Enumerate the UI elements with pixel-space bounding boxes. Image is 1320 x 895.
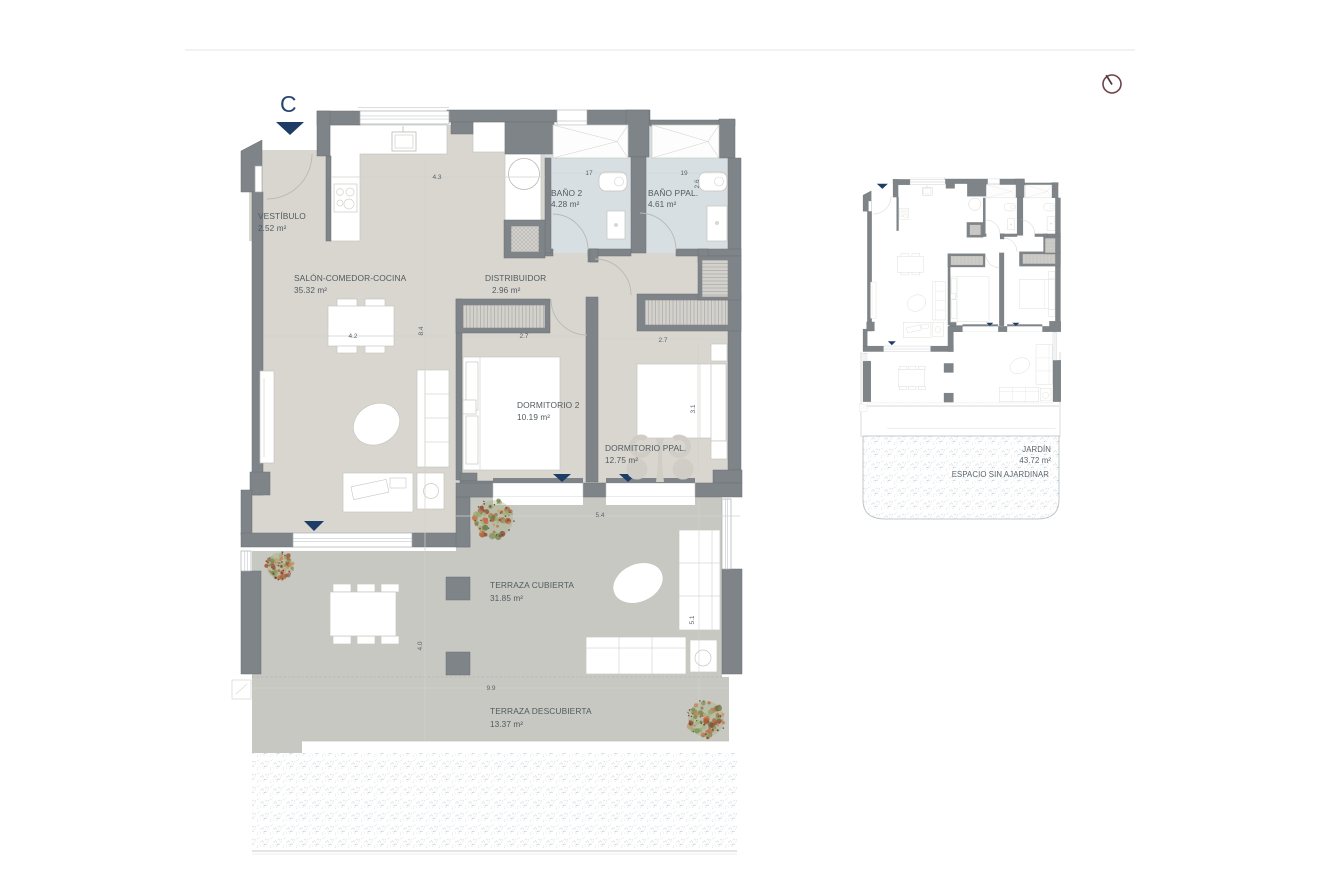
svg-text:DORMITORIO 2: DORMITORIO 2 bbox=[517, 400, 580, 410]
svg-text:SALÓN-COMEDOR-COCINA: SALÓN-COMEDOR-COCINA bbox=[294, 273, 407, 283]
svg-text:ESPACIO SIN AJARDINAR: ESPACIO SIN AJARDINAR bbox=[952, 470, 1050, 479]
svg-text:VESTÍBULO: VESTÍBULO bbox=[258, 211, 306, 221]
svg-text:35.32 m²: 35.32 m² bbox=[294, 286, 327, 295]
svg-text:4.0: 4.0 bbox=[417, 641, 424, 650]
svg-text:4.3: 4.3 bbox=[432, 174, 441, 181]
svg-text:5.4: 5.4 bbox=[595, 512, 604, 519]
svg-text:BAÑO 2: BAÑO 2 bbox=[551, 188, 583, 198]
svg-text:5.1: 5.1 bbox=[689, 615, 696, 624]
svg-text:2.96 m²: 2.96 m² bbox=[492, 286, 521, 295]
svg-text:13.37 m²: 13.37 m² bbox=[490, 720, 523, 729]
svg-text:19: 19 bbox=[680, 170, 688, 177]
svg-text:4.2: 4.2 bbox=[348, 333, 357, 340]
svg-text:43.72 m²: 43.72 m² bbox=[1019, 456, 1051, 465]
svg-text:4.28 m²: 4.28 m² bbox=[551, 200, 580, 209]
svg-text:8.4: 8.4 bbox=[418, 326, 425, 335]
svg-text:TERRAZA DESCUBIERTA: TERRAZA DESCUBIERTA bbox=[490, 706, 592, 716]
svg-text:2.7: 2.7 bbox=[658, 337, 667, 344]
svg-text:DORMITORIO PPAL.: DORMITORIO PPAL. bbox=[605, 443, 686, 453]
svg-text:10.19 m²: 10.19 m² bbox=[517, 413, 550, 422]
svg-text:17: 17 bbox=[585, 170, 593, 177]
svg-text:12.75 m²: 12.75 m² bbox=[605, 456, 638, 465]
svg-text:4.61 m²: 4.61 m² bbox=[648, 200, 677, 209]
svg-text:31.85 m²: 31.85 m² bbox=[490, 594, 523, 603]
svg-text:TERRAZA CUBIERTA: TERRAZA CUBIERTA bbox=[490, 580, 574, 590]
svg-text:3.1: 3.1 bbox=[690, 404, 697, 413]
svg-text:BAÑO PPAL.: BAÑO PPAL. bbox=[648, 188, 698, 198]
svg-text:2.7: 2.7 bbox=[519, 333, 528, 340]
svg-text:2.52 m²: 2.52 m² bbox=[258, 224, 287, 233]
svg-text:DISTRIBUIDOR: DISTRIBUIDOR bbox=[485, 273, 546, 283]
svg-text:C: C bbox=[280, 91, 297, 117]
svg-text:9.9: 9.9 bbox=[486, 685, 495, 692]
svg-text:JARDÍN: JARDÍN bbox=[1022, 445, 1051, 454]
